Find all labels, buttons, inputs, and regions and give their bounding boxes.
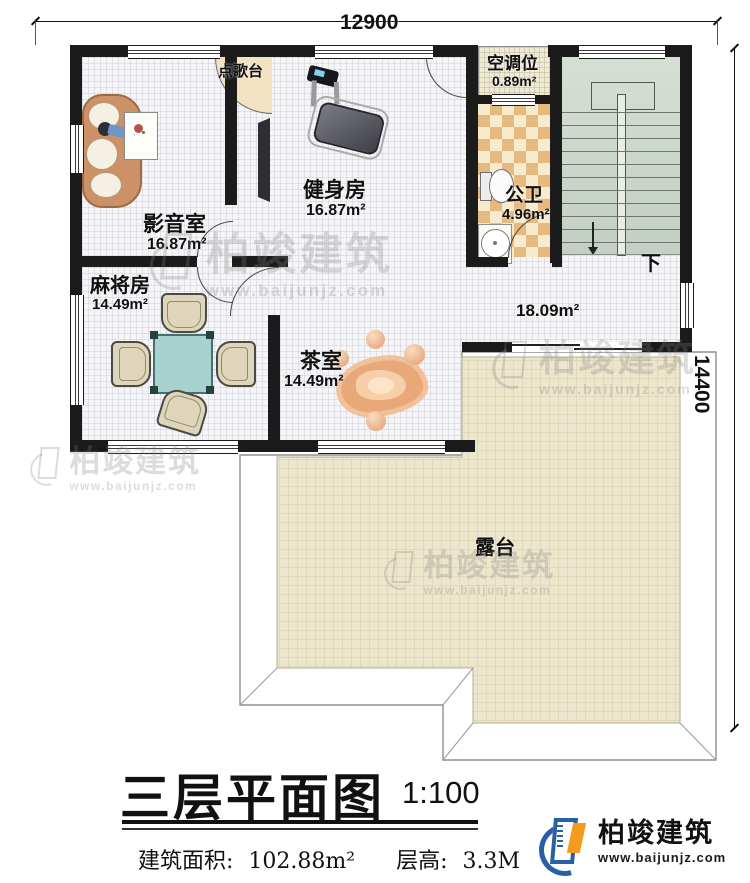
stairs-down-label: 下 — [641, 254, 661, 274]
stair-step — [562, 177, 680, 178]
stair-down-arrow-line — [592, 222, 594, 248]
table-flowers — [134, 124, 143, 133]
build-area-label: 建筑面积: — [138, 849, 233, 874]
stair-step — [562, 203, 680, 204]
stair-step — [562, 216, 680, 217]
floor-plan-page: 点歌台 影音室 16.87m² 健身房 16.87m² 空调位 0.89m² 公… — [0, 0, 750, 883]
table-corner — [150, 386, 158, 394]
room-label-media: 影音室 — [143, 214, 206, 235]
coffee-table — [124, 112, 158, 160]
brand-text: 柏竣建筑 www.baijunjz.com — [598, 819, 726, 866]
sofa-cushion — [90, 172, 122, 198]
sink-drain — [493, 241, 497, 245]
table-corner — [206, 386, 214, 394]
title-rule-thick — [122, 820, 478, 824]
wall — [268, 315, 280, 452]
window — [680, 283, 694, 328]
watermark-url: www.baijunjz.com — [69, 480, 200, 493]
dimension-right-value: 14400 — [691, 355, 712, 413]
tea-stool — [366, 411, 386, 431]
extension-line — [717, 21, 718, 45]
window — [128, 45, 220, 59]
wall — [232, 256, 288, 267]
tea-table-center — [368, 377, 394, 394]
wall — [680, 45, 692, 283]
stair-step — [562, 190, 680, 191]
chair — [111, 341, 151, 387]
room-area-tea: 14.49m² — [284, 374, 344, 390]
stair-step — [562, 138, 680, 139]
window — [318, 440, 445, 454]
wall — [70, 45, 82, 125]
wall — [550, 45, 562, 263]
wall — [535, 95, 552, 104]
stair-step — [562, 242, 680, 243]
room-area-ac: 0.89m² — [492, 74, 536, 88]
tea-stool — [404, 344, 425, 365]
sofa-cushion — [86, 138, 118, 170]
window — [108, 440, 238, 454]
stair-step — [562, 229, 680, 230]
window — [70, 295, 84, 405]
stair-center-rail — [617, 94, 626, 256]
floor-height-label: 层高: — [396, 849, 447, 874]
table-corner — [206, 331, 214, 339]
sliding-door-leaf — [574, 348, 642, 350]
room-area-mahjong: 14.49m² — [92, 297, 148, 312]
stair-hall-boundary — [562, 254, 680, 255]
wall — [82, 256, 197, 267]
wall — [70, 173, 82, 295]
room-label-tea: 茶室 — [300, 351, 342, 372]
window — [492, 94, 535, 106]
room-label-terrace: 露台 — [475, 538, 515, 558]
title-scale: 1:100 — [402, 775, 480, 811]
room-label-ac: 空调位 — [487, 55, 538, 72]
wall — [462, 342, 512, 352]
wall — [70, 440, 108, 452]
brand-website: www.baijunjz.com — [598, 850, 726, 865]
floor-height-value: 3.3M — [463, 849, 521, 874]
sliding-door-leaf — [512, 344, 580, 346]
title-info-line: 建筑面积: 102.88m² 层高: 3.3M — [138, 843, 520, 875]
window — [315, 45, 433, 59]
stair-step — [562, 112, 680, 113]
dimension-top-value: 12900 — [340, 12, 398, 33]
wall — [220, 45, 315, 57]
room-area-bath: 4.96m² — [502, 207, 550, 222]
stair-step — [562, 151, 680, 152]
chair — [161, 293, 207, 333]
dimension-tick — [730, 723, 739, 732]
watermark-logo-icon — [30, 446, 66, 485]
logo-windows — [557, 825, 563, 847]
window — [70, 125, 84, 173]
table-corner — [150, 331, 158, 339]
brand-logo: 柏竣建筑 www.baijunjz.com — [538, 812, 738, 872]
tea-stool — [366, 330, 385, 349]
wall — [445, 440, 475, 452]
tv-screen — [258, 118, 270, 202]
extension-line — [35, 21, 36, 45]
wall — [642, 342, 692, 352]
build-area-value: 102.88m² — [248, 849, 355, 874]
mahjong-table — [153, 334, 213, 394]
dimension-line-right — [734, 48, 735, 728]
room-area-hall: 18.09m² — [516, 302, 579, 319]
wall — [552, 257, 562, 267]
room-area-media: 16.87m² — [147, 237, 207, 253]
room-area-gym: 16.87m² — [306, 203, 366, 219]
room-label-karaoke: 点歌台 — [218, 64, 263, 79]
wall — [478, 95, 492, 104]
room-label-gym: 健身房 — [303, 180, 366, 201]
brand-name: 柏竣建筑 — [598, 819, 726, 849]
chair — [216, 341, 256, 387]
room-label-mahjong: 麻将房 — [90, 276, 150, 296]
brand-logo-icon — [538, 814, 590, 870]
title-rule-thin — [122, 828, 478, 830]
sliding-door — [512, 342, 642, 352]
wall — [466, 257, 508, 267]
room-label-bath: 公卫 — [505, 186, 543, 205]
window — [579, 45, 665, 59]
stair-step — [562, 164, 680, 165]
stair-step — [562, 125, 680, 126]
wall — [466, 45, 478, 267]
